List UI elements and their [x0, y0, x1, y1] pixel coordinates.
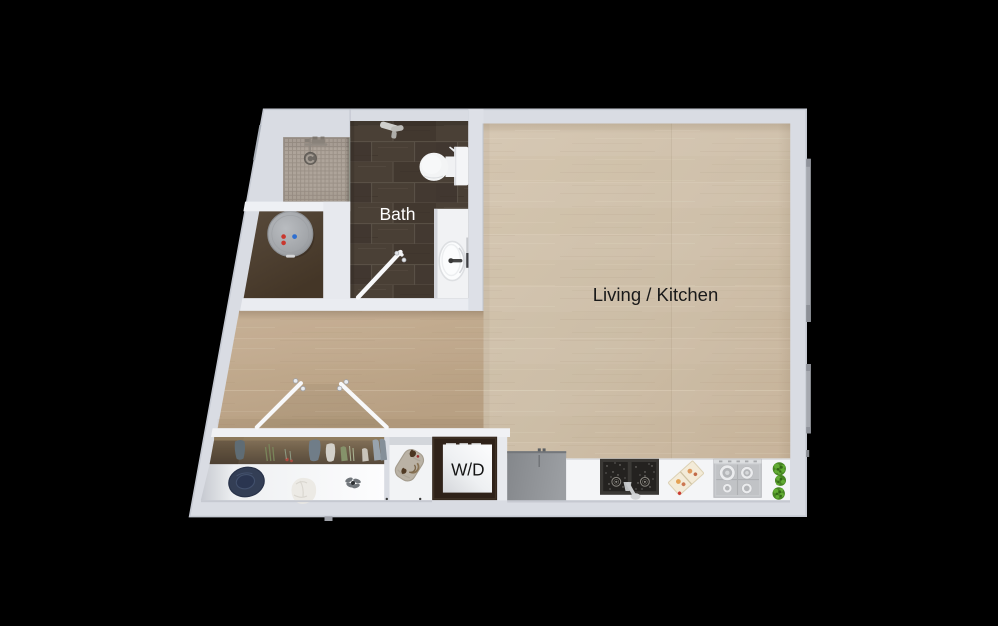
svg-text:W/D: W/D: [451, 460, 484, 480]
svg-text:Living / Kitchen: Living / Kitchen: [593, 284, 718, 305]
svg-text:Bath: Bath: [380, 204, 416, 224]
